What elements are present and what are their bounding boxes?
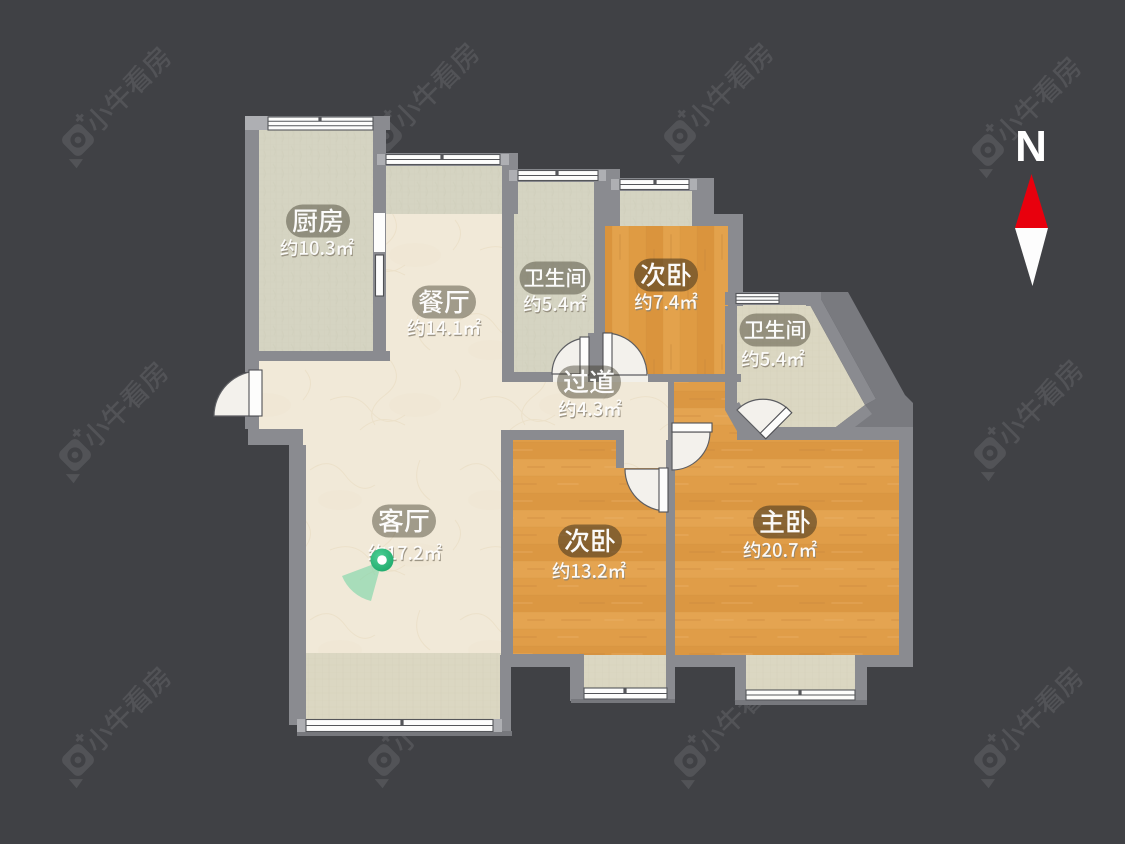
svg-text:N: N xyxy=(1015,122,1047,171)
